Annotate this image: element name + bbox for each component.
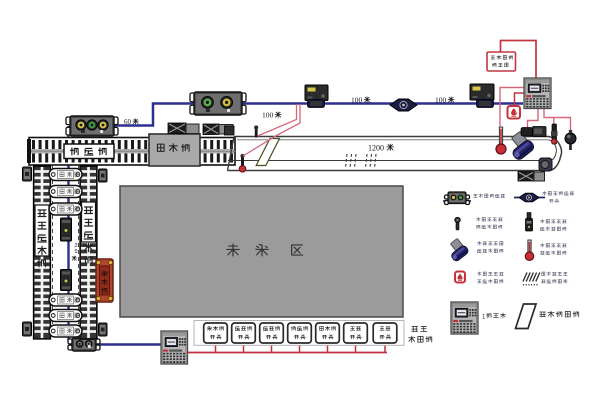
- svg-text:1200: 1200: [368, 144, 384, 153]
- svg-text:60: 60: [124, 118, 132, 126]
- svg-text:100: 100: [435, 96, 447, 105]
- svg-text:5: 5: [75, 249, 78, 255]
- svg-text:100: 100: [262, 111, 274, 120]
- svg-text:100: 100: [351, 96, 363, 105]
